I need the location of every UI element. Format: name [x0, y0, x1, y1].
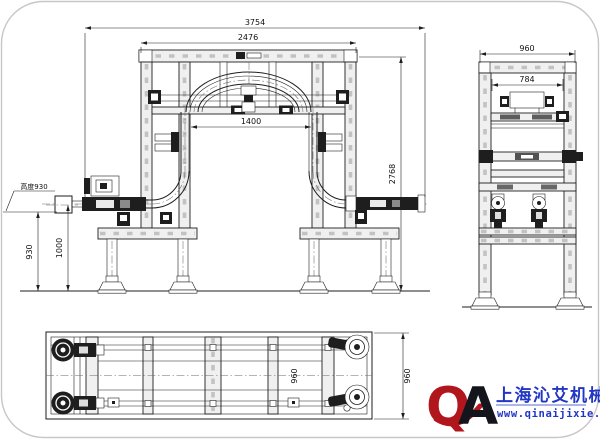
dim-plan-depth: 960 [403, 368, 412, 383]
dim-conveyor-height: 1000 [55, 238, 64, 258]
dim-side-width: 960 [519, 44, 534, 53]
dim-opening-width: 1400 [241, 117, 261, 126]
dim-side-inner-width: 784 [519, 75, 534, 84]
height-callout-label: 高度930 [20, 182, 47, 191]
dim-frame-width: 2476 [238, 33, 258, 42]
logo-website: www.qinaijixie.com [497, 408, 600, 420]
logo-company-name: 上海沁艾机械 [496, 385, 600, 406]
logo-letter-a: A [458, 377, 498, 437]
dim-plan-inner-depth: 960 [290, 368, 299, 383]
dim-overall-width: 3754 [245, 18, 265, 27]
dim-infeed-height: 930 [25, 244, 34, 259]
drawing-page: 3754 2476 1400 2768 930 1000 高度930 [0, 0, 600, 439]
cad-drawing: 3754 2476 1400 2768 930 1000 高度930 [0, 0, 600, 439]
dim-overall-height: 2768 [388, 164, 397, 184]
